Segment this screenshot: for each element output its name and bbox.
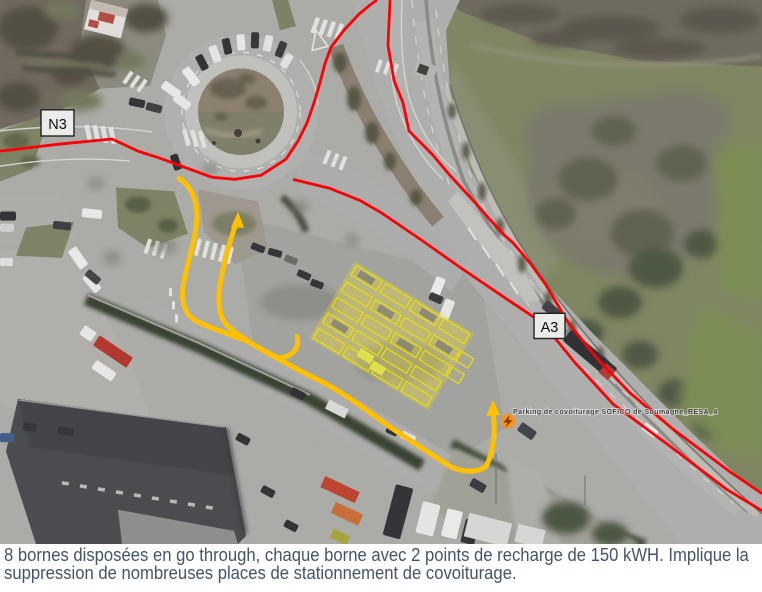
svg-text:A3: A3 (541, 320, 559, 336)
svg-text:N3: N3 (48, 117, 67, 133)
svg-text:Parking de covoiturage SOFICO: Parking de covoiturage SOFICO de Soumagn… (513, 407, 718, 416)
